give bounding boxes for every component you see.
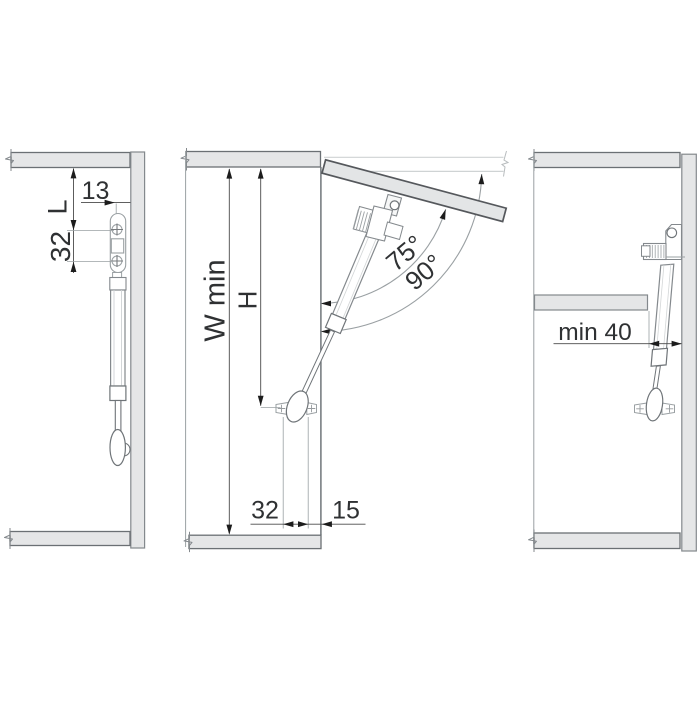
svg-text:32: 32 [45, 231, 76, 262]
svg-text:min 40: min 40 [558, 319, 632, 346]
svg-text:15: 15 [332, 497, 360, 525]
svg-text:H: H [233, 291, 263, 310]
svg-text:W min: W min [200, 259, 232, 341]
svg-text:13: 13 [82, 177, 110, 205]
svg-text:L: L [43, 199, 73, 214]
svg-text:32: 32 [251, 497, 279, 525]
